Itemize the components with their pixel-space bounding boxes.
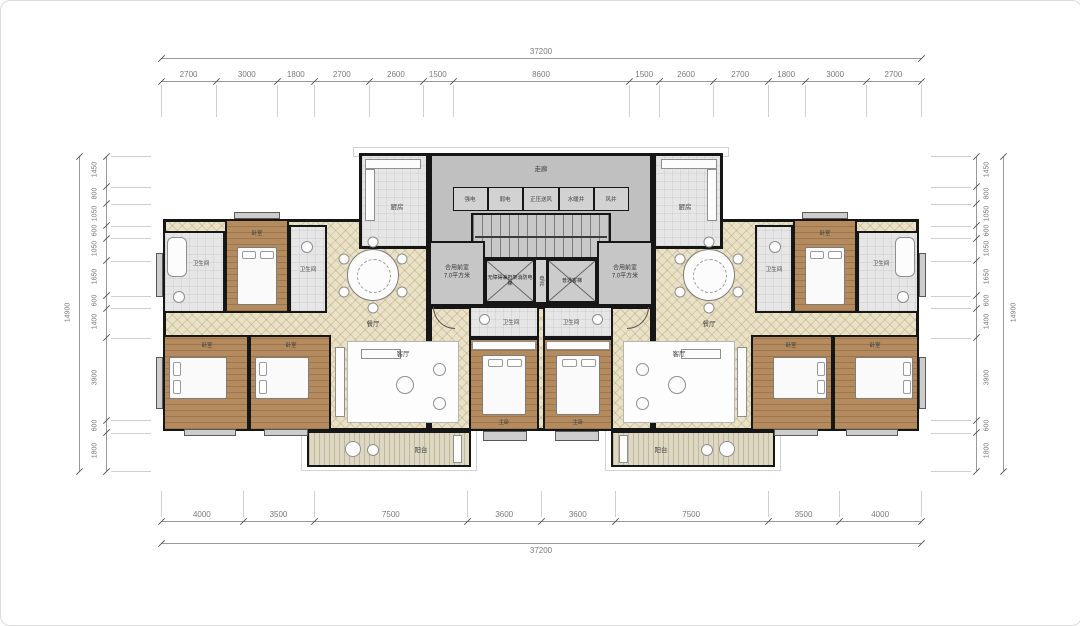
bedroom-label: 卧室: [251, 229, 262, 237]
balcony-stool: [367, 444, 379, 456]
window: [774, 429, 818, 436]
witness-line: [768, 491, 769, 517]
balcony-right-label: 阳台: [655, 444, 668, 454]
witness-line: [111, 261, 151, 262]
window: [156, 357, 163, 409]
witness-line: [277, 85, 278, 117]
floor-plan-drawing: 走廊 强电 弱电 正压送风 水暖井 风井 电井 无障碍兼担架消防电梯 普通客梯: [1, 1, 1080, 625]
witness-line: [423, 85, 424, 117]
shaft-label: 正压送风: [530, 195, 552, 203]
window: [264, 429, 308, 436]
witness-line: [111, 238, 151, 239]
dimension-line: [1003, 156, 1004, 471]
living-right-label: 客厅: [673, 348, 686, 358]
master-bedroom-label: 主卧: [572, 418, 583, 426]
elevator-left-label: 无障碍兼担架消防电梯: [487, 275, 533, 287]
dim-label: 4000: [858, 510, 902, 519]
bathroom-label: 卫生间: [193, 259, 210, 267]
toilet: [479, 314, 490, 325]
witness-line: [111, 204, 151, 205]
dim-label: 3000: [813, 70, 857, 79]
witness-line: [111, 338, 151, 339]
dim-label: 2700: [871, 70, 915, 79]
window: [919, 253, 926, 297]
bathtub: [167, 237, 187, 277]
bedroom-label: 卧室: [285, 341, 296, 349]
witness-line: [931, 420, 971, 421]
witness-line: [931, 433, 971, 434]
witness-line: [314, 85, 315, 117]
dim-label: 8600: [519, 70, 563, 79]
master-bedroom-label: 主卧: [498, 418, 509, 426]
witness-line: [161, 85, 162, 117]
witness-line: [921, 85, 922, 117]
dining-table-left: [347, 249, 399, 301]
bedroom-label: 卧室: [785, 341, 796, 349]
shaft-label: 弱电: [499, 195, 510, 203]
witness-line: [369, 85, 370, 117]
dim-label: 1800: [764, 70, 808, 79]
witness-line: [866, 85, 867, 117]
bathroom-label: 卫生间: [563, 318, 580, 326]
shaft-label: 水暖井: [568, 195, 585, 203]
window: [802, 212, 848, 219]
witness-line: [921, 491, 922, 517]
dim-total-label: 14900: [1011, 290, 1018, 334]
kitchen-counter: [365, 159, 421, 169]
witness-line: [216, 85, 217, 117]
witness-line: [659, 85, 660, 117]
floor-plan-page: 走廊 强电 弱电 正压送风 水暖井 风井 电井 无障碍兼担架消防电梯 普通客梯: [0, 0, 1080, 626]
bedroom-label: 卧室: [201, 341, 212, 349]
witness-line: [243, 491, 244, 517]
witness-line: [931, 187, 971, 188]
balcony-right: [611, 431, 775, 467]
witness-line: [111, 187, 151, 188]
dining-table-right: [683, 249, 735, 301]
bathroom-label: 卫生间: [873, 259, 890, 267]
kitchen-counter: [365, 169, 375, 221]
witness-line: [111, 156, 151, 157]
window: [156, 253, 163, 297]
dim-label: 3500: [256, 510, 300, 519]
witness-line: [931, 204, 971, 205]
dim-total-label: 37200: [511, 47, 571, 56]
window: [846, 429, 898, 436]
witness-line: [931, 308, 971, 309]
witness-line: [805, 85, 806, 117]
dim-label: 2600: [664, 70, 708, 79]
balcony-left-label: 阳台: [415, 444, 428, 454]
kitchen-right-label: 厨房: [679, 201, 692, 211]
window: [184, 429, 236, 436]
sideboard: [737, 347, 747, 417]
planter: [619, 435, 628, 463]
witness-line: [111, 308, 151, 309]
witness-line: [768, 85, 769, 117]
witness-line: [931, 471, 971, 472]
witness-line: [314, 491, 315, 517]
sofa: [361, 349, 401, 359]
dim-label: 3900: [92, 356, 99, 400]
armchair: [636, 397, 649, 410]
witness-line: [713, 85, 714, 117]
shaft-label: 风井: [605, 195, 616, 203]
witness-line: [931, 296, 971, 297]
bathroom-label: 卫生间: [503, 318, 520, 326]
witness-line: [931, 238, 971, 239]
witness-line: [111, 471, 151, 472]
witness-line: [453, 85, 454, 117]
planter: [453, 435, 462, 463]
witness-line: [111, 433, 151, 434]
dim-label: 1800: [984, 428, 991, 472]
toilet: [173, 291, 185, 303]
kitchen-counter: [661, 159, 717, 169]
window: [555, 431, 599, 441]
elevator-right-label: 普通客梯: [549, 278, 595, 284]
mid-shaft-label: 电井: [537, 276, 545, 287]
kitchen-left-label: 厨房: [391, 201, 404, 211]
sideboard: [335, 347, 345, 417]
kitchen-counter: [707, 169, 717, 221]
dim-label: 2700: [718, 70, 762, 79]
balcony-stool: [345, 441, 361, 457]
dim-label: 7500: [369, 510, 413, 519]
window: [483, 431, 527, 441]
armchair: [433, 363, 446, 376]
dim-label: 7500: [669, 510, 713, 519]
armchair: [433, 397, 446, 410]
front-room-right-label: 合用前室7.0平方米: [612, 266, 638, 281]
dim-label: 1500: [622, 70, 666, 79]
corridor-label: 走廊: [535, 163, 548, 173]
balcony-stool: [719, 441, 735, 457]
toilet: [897, 291, 909, 303]
bathroom-label: 卫生间: [300, 265, 317, 273]
dimension-line: [161, 58, 921, 59]
window: [919, 357, 926, 409]
witness-line: [629, 85, 630, 117]
coffee-table: [396, 376, 414, 394]
dining-left-label: 餐厅: [367, 318, 380, 328]
witness-line: [615, 491, 616, 517]
dim-label: 1800: [92, 428, 99, 472]
shaft-label: 强电: [464, 195, 475, 203]
sofa: [681, 349, 721, 359]
toilet: [769, 241, 781, 253]
dim-label: 2700: [167, 70, 211, 79]
witness-line: [541, 491, 542, 517]
witness-line: [931, 156, 971, 157]
dim-label: 3000: [225, 70, 269, 79]
witness-line: [161, 491, 162, 517]
dim-label: 3500: [782, 510, 826, 519]
toilet: [592, 314, 603, 325]
toilet: [301, 241, 313, 253]
witness-line: [467, 491, 468, 517]
bedroom-label: 卧室: [869, 341, 880, 349]
dimension-line: [161, 543, 921, 544]
dim-label: 4000: [180, 510, 224, 519]
witness-line: [111, 420, 151, 421]
witness-line: [111, 296, 151, 297]
dim-label: 1400: [984, 300, 991, 344]
coffee-table: [668, 376, 686, 394]
front-room-left-label: 合用前室7.0平方米: [444, 266, 470, 281]
dim-label: 1800: [274, 70, 318, 79]
bedroom-label: 卧室: [819, 229, 830, 237]
armchair: [636, 363, 649, 376]
dim-total-label: 14900: [65, 290, 72, 334]
witness-line: [931, 261, 971, 262]
witness-line: [111, 226, 151, 227]
witness-line: [931, 226, 971, 227]
wardrobe: [472, 341, 536, 350]
witness-line: [839, 491, 840, 517]
dim-total-label: 37200: [511, 546, 571, 555]
dim-label: 1400: [92, 300, 99, 344]
living-left-label: 客厅: [397, 348, 410, 358]
dim-label: 2700: [320, 70, 364, 79]
wardrobe: [546, 341, 610, 350]
window: [234, 212, 280, 219]
balcony-stool: [701, 444, 713, 456]
staircase: [471, 213, 611, 259]
bathtub: [895, 237, 915, 277]
witness-line: [931, 338, 971, 339]
bathroom-label: 卫生间: [766, 265, 783, 273]
dim-label: 1500: [416, 70, 460, 79]
center-lower-block: [429, 306, 653, 431]
dim-label: 2600: [374, 70, 418, 79]
dining-right-label: 餐厅: [703, 318, 716, 328]
dimension-line: [79, 156, 80, 471]
dim-label: 3600: [482, 510, 526, 519]
dim-label: 3600: [556, 510, 600, 519]
balcony-left: [307, 431, 471, 467]
dim-label: 3900: [984, 356, 991, 400]
